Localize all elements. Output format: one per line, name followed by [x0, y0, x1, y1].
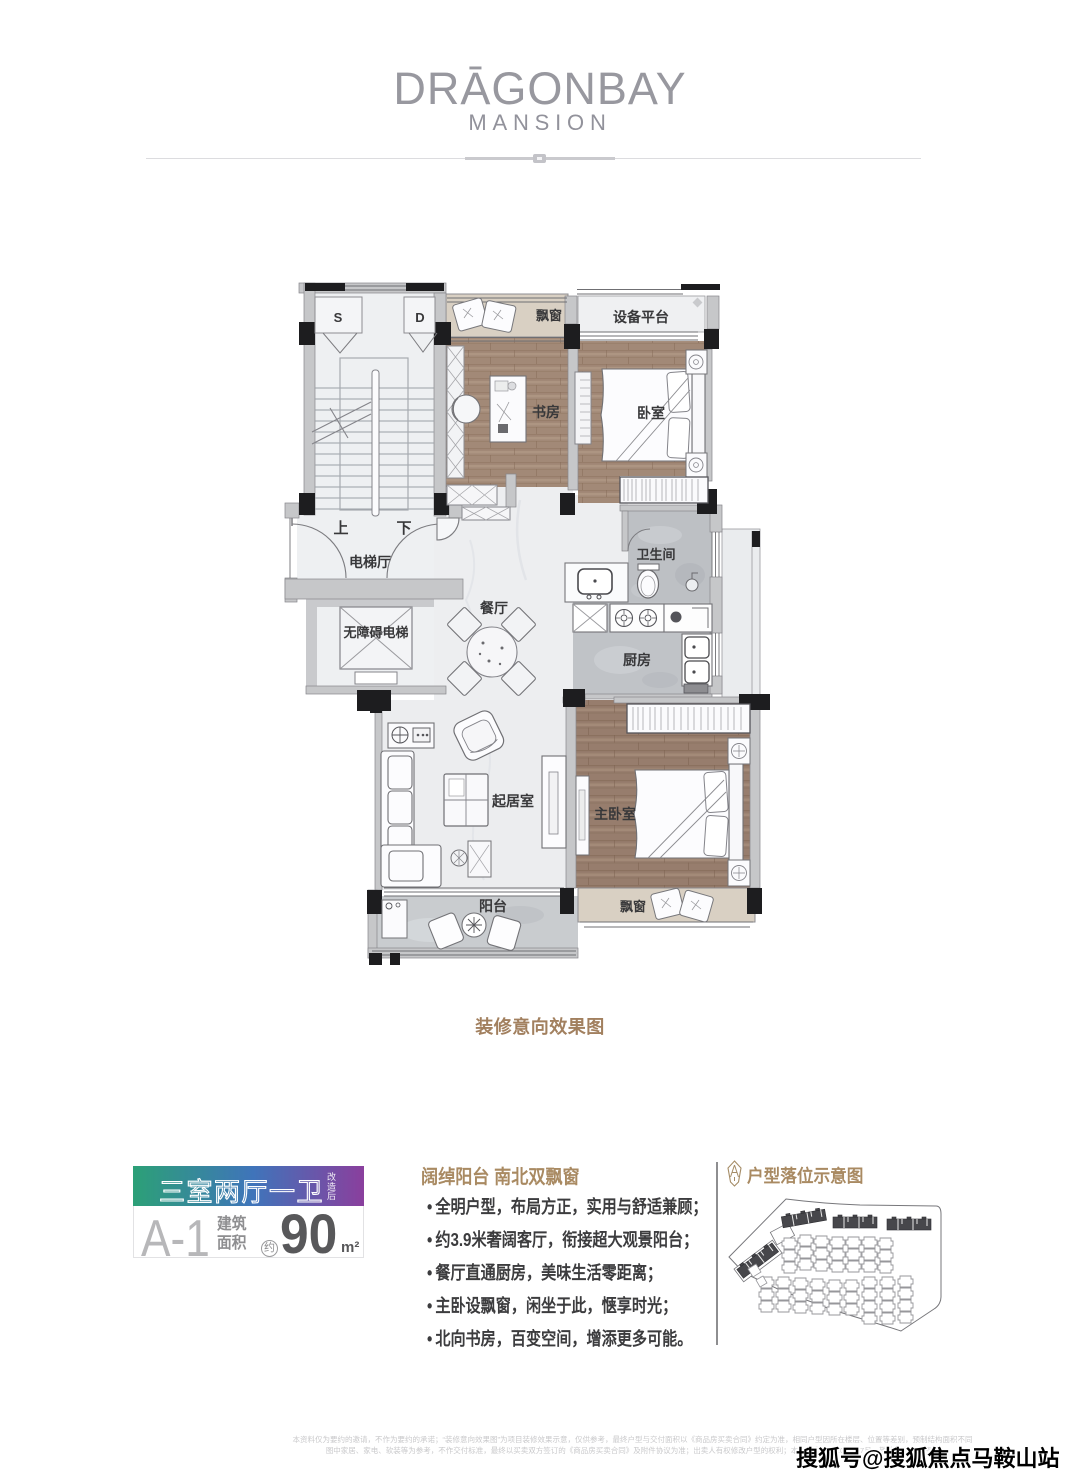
svg-text:S: S	[334, 310, 343, 325]
svg-text:卫生间: 卫生间	[636, 547, 675, 562]
svg-text:书房: 书房	[532, 404, 560, 420]
svg-text:餐厅: 餐厅	[479, 600, 508, 616]
svg-text:上: 上	[333, 520, 348, 537]
svg-text:卧室: 卧室	[637, 405, 665, 421]
svg-text:设备平台: 设备平台	[613, 309, 669, 325]
svg-text:起居室: 起居室	[491, 793, 534, 809]
svg-text:阳台: 阳台	[479, 898, 507, 914]
svg-text:飘窗: 飘窗	[536, 308, 562, 323]
svg-text:D: D	[415, 310, 424, 325]
svg-text:飘窗: 飘窗	[620, 899, 646, 914]
svg-text:主卧室: 主卧室	[594, 806, 636, 822]
svg-text:下: 下	[396, 520, 411, 537]
svg-text:电梯厅: 电梯厅	[349, 554, 391, 570]
svg-text:无障碍电梯: 无障碍电梯	[342, 625, 408, 640]
svg-text:厨房: 厨房	[623, 652, 651, 668]
